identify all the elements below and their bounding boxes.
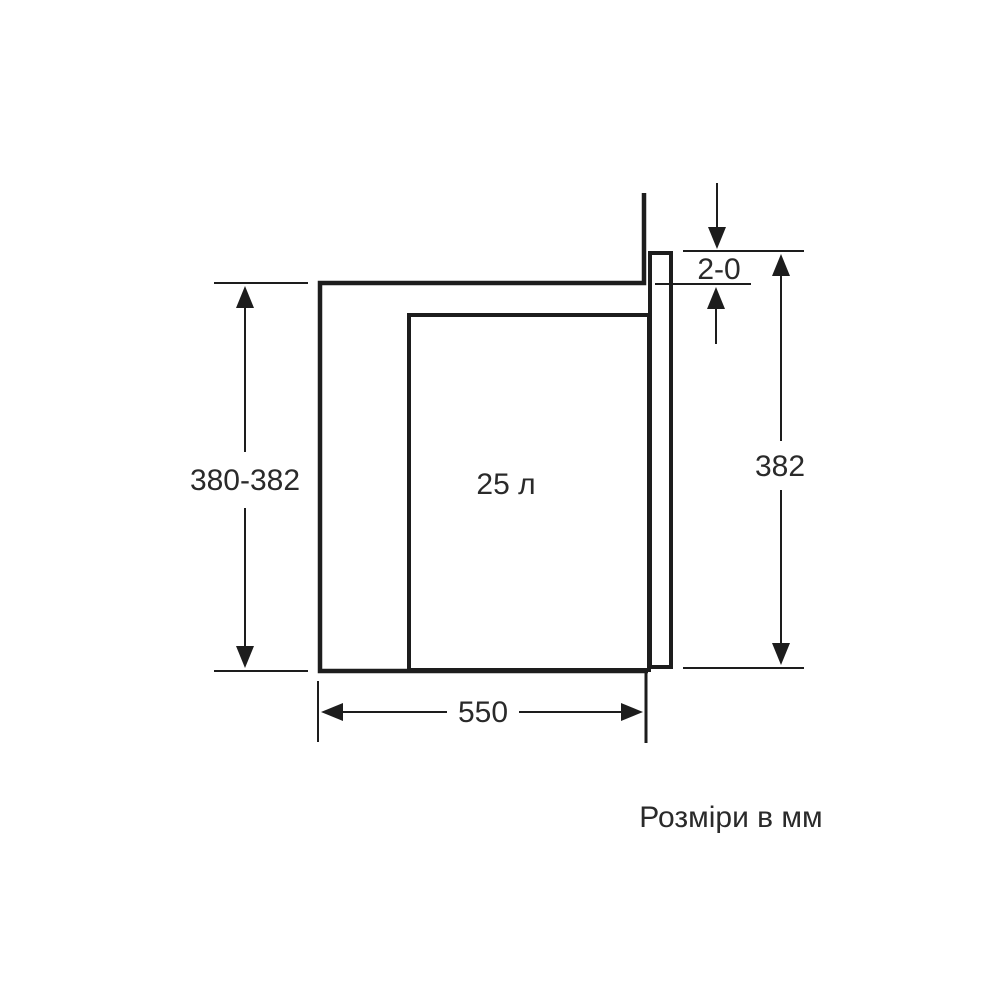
niche-wall-path <box>320 193 648 671</box>
niche-outline <box>320 193 648 671</box>
niche-width-label: 550 <box>458 696 508 729</box>
arrowhead-down-icon <box>236 646 254 668</box>
arrowhead-left-icon <box>321 703 343 721</box>
dimension-niche-width: 550 <box>318 672 646 743</box>
arrowhead-down-icon <box>708 227 726 249</box>
installation-drawing-canvas: 25 л 380-382 382 2-0 <box>0 0 1000 1000</box>
arrowhead-up-icon <box>707 287 725 309</box>
arrowhead-up-icon <box>772 254 790 276</box>
caption: Розміри в мм <box>639 801 822 834</box>
dimension-niche-height: 380-382 <box>190 283 308 671</box>
niche-height-label: 380-382 <box>190 464 300 497</box>
arrowhead-down-icon <box>772 643 790 665</box>
front-frame <box>650 253 671 667</box>
arrowhead-up-icon <box>236 286 254 308</box>
dimension-appliance-height: 382 <box>683 251 805 668</box>
appliance-height-label: 382 <box>755 450 805 483</box>
dimension-drawing: 25 л 380-382 382 2-0 <box>0 0 1000 1000</box>
capacity-label: 25 л <box>476 468 535 501</box>
top-clearance-label: 2-0 <box>697 253 740 286</box>
arrowhead-right-icon <box>621 703 643 721</box>
